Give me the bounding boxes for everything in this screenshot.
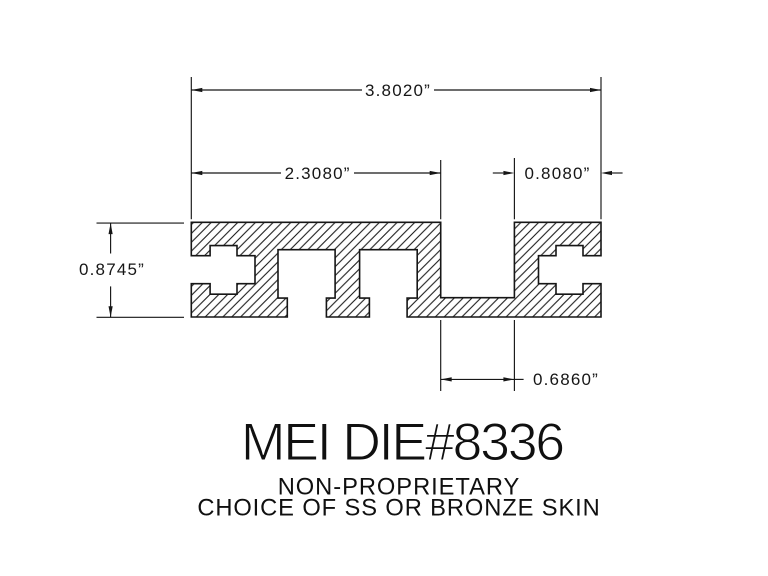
svg-text:0.8080”: 0.8080” bbox=[524, 164, 590, 183]
svg-text:0.8745”: 0.8745” bbox=[79, 260, 145, 279]
svg-text:2.3080”: 2.3080” bbox=[285, 164, 351, 183]
svg-text:MEI DIE#8336: MEI DIE#8336 bbox=[241, 413, 563, 472]
svg-text:0.6860”: 0.6860” bbox=[533, 370, 599, 389]
svg-text:3.8020”: 3.8020” bbox=[365, 81, 431, 100]
svg-text:CHOICE OF SS OR BRONZE SKIN: CHOICE OF SS OR BRONZE SKIN bbox=[197, 496, 600, 522]
